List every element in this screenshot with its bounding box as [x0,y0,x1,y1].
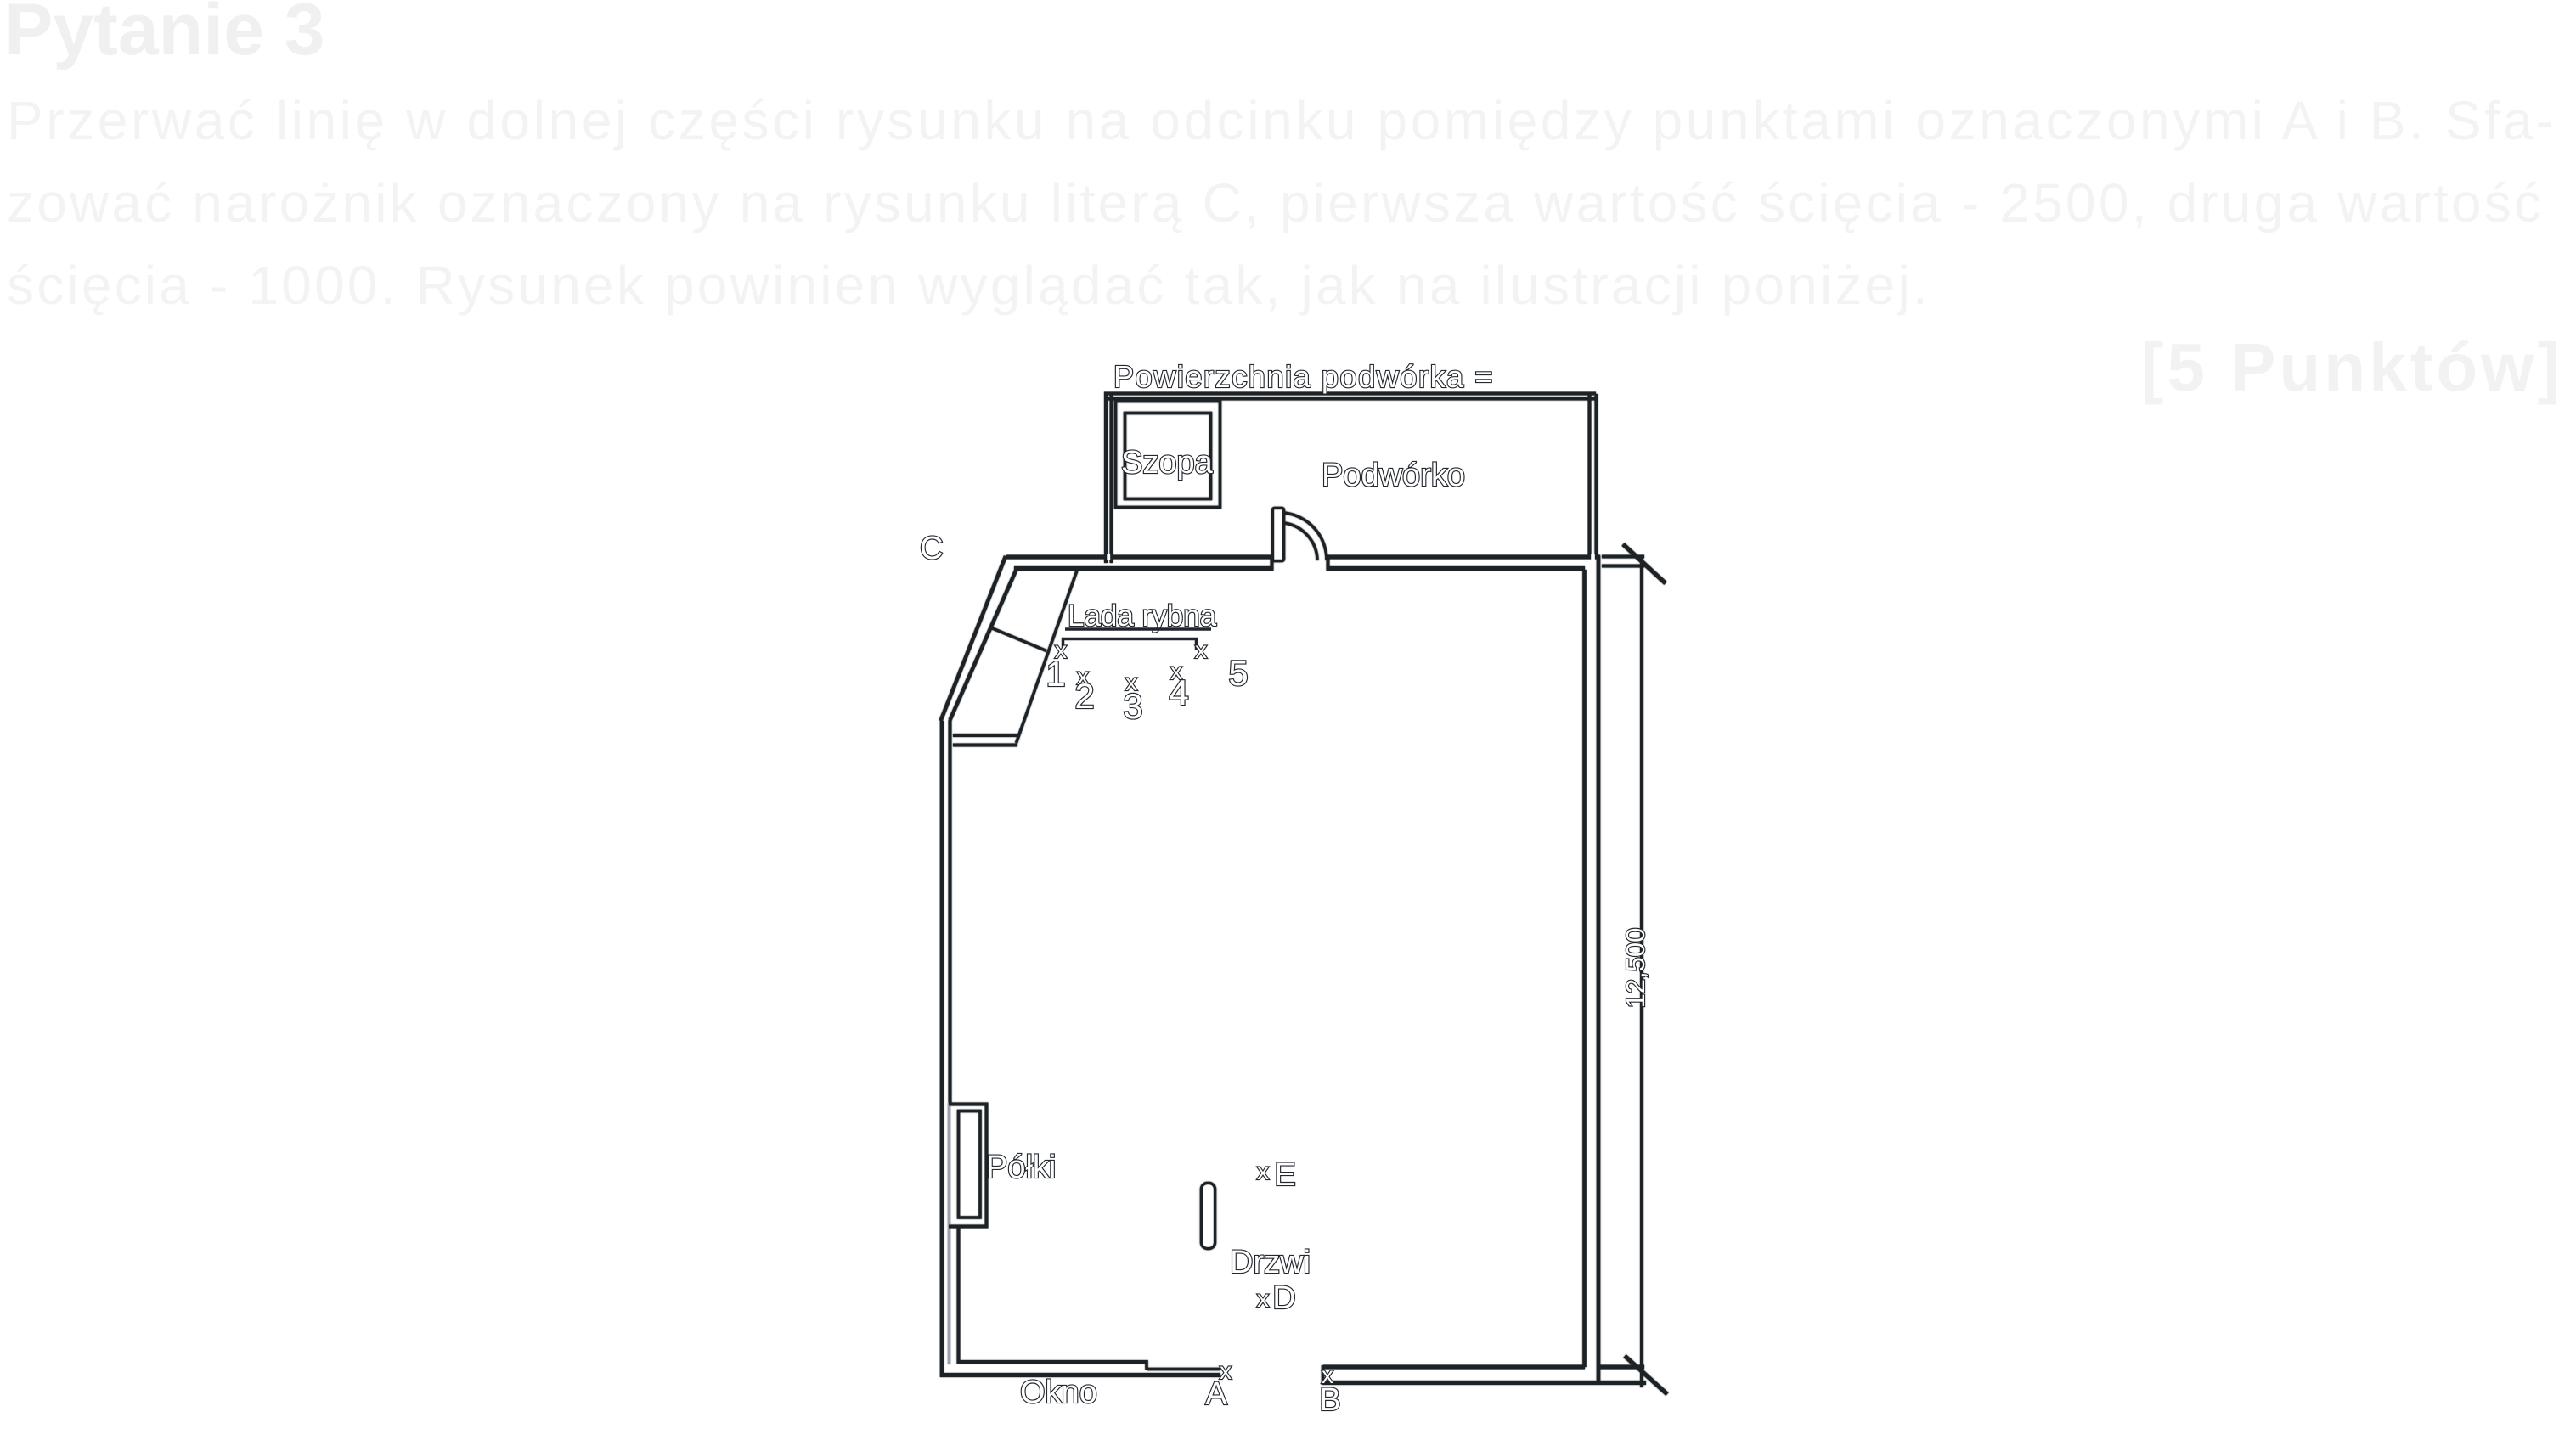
svg-text:Lada rybna: Lada rybna [1068,599,1217,633]
svg-text:Drzwi: Drzwi [1230,1245,1311,1280]
svg-text:B: B [1319,1382,1340,1418]
svg-text:Półki: Półki [986,1150,1056,1185]
svg-text:E: E [1274,1157,1295,1193]
svg-text:Powierzchnia podwórka =: Powierzchnia podwórka = [1113,359,1494,394]
svg-text:Przerwać linię w dolnej części: Przerwać linię w dolnej części rysunku n… [7,90,2557,151]
svg-text:x: x [1195,637,1207,663]
svg-text:1: 1 [1046,654,1065,694]
svg-text:Szopa: Szopa [1121,445,1214,481]
svg-text:Okno: Okno [1020,1375,1097,1410]
svg-text:4: 4 [1169,672,1188,712]
svg-text:3: 3 [1123,686,1142,726]
svg-text:12,500: 12,500 [1621,928,1650,1009]
svg-text:ścięcia - 1000. Rysunek powini: ścięcia - 1000. Rysunek powinien wygląda… [7,255,1931,316]
svg-text:D: D [1272,1280,1295,1316]
svg-text:Pytanie 3: Pytanie 3 [4,0,325,70]
svg-text:A: A [1205,1376,1227,1412]
svg-text:2: 2 [1074,676,1094,716]
svg-text:x: x [1257,1158,1269,1184]
svg-text:C: C [920,531,943,566]
svg-text:zować narożnik oznaczony na ry: zować narożnik oznaczony na rysunku lite… [7,172,2544,233]
svg-text:[5 Punktów]: [5 Punktów] [2141,329,2563,405]
svg-text:5: 5 [1228,653,1248,693]
svg-text:Podwórko: Podwórko [1322,458,1465,493]
svg-text:x: x [1257,1285,1269,1312]
